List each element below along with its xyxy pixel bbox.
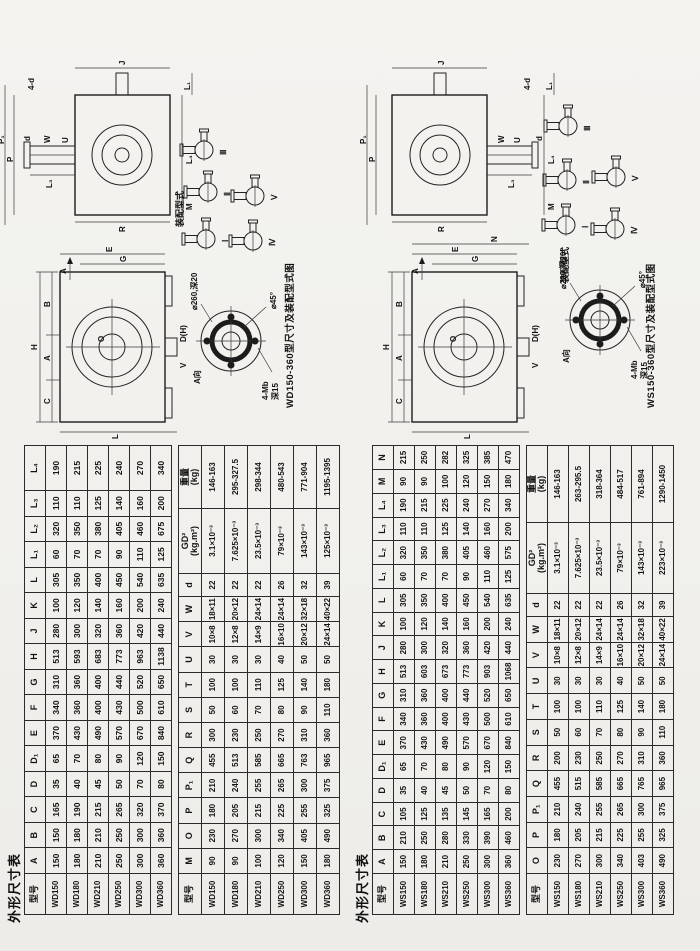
- column-header: A: [25, 848, 46, 874]
- value-cell: 603: [415, 660, 436, 684]
- value-cell: 200: [548, 745, 569, 771]
- value-cell: 32×18: [294, 597, 317, 622]
- value-cell: 210: [394, 826, 415, 850]
- value-cell: 3.1×10⁻³: [202, 509, 225, 574]
- table-row: WD15015015016535653703403105132801003056…: [46, 446, 67, 915]
- value-cell: 585: [590, 771, 611, 797]
- value-cell: 70: [67, 542, 88, 568]
- dim-label-v: V: [179, 362, 188, 368]
- value-cell: 125: [88, 491, 109, 517]
- table-row: WD300150405255300763310901405020×1232×18…: [294, 446, 317, 915]
- value-cell: 325: [653, 822, 674, 848]
- dim-label-l4: L₄: [547, 155, 556, 164]
- column-header: G: [373, 683, 394, 707]
- value-cell: 513: [225, 748, 248, 773]
- value-cell: 575: [499, 541, 520, 565]
- model-cell: WD250: [271, 874, 294, 915]
- value-cell: 16×10: [611, 642, 632, 668]
- value-cell: 320: [130, 797, 151, 823]
- value-cell: 430: [109, 695, 130, 721]
- value-cell: 761-894: [632, 446, 653, 523]
- dim-label-c: C: [43, 398, 52, 404]
- value-cell: 20×12: [632, 642, 653, 668]
- table-row: WS3604903253759653601101805024×1440×2239…: [653, 446, 674, 915]
- value-cell: 90: [202, 848, 225, 873]
- value-cell: 240: [151, 593, 172, 619]
- value-cell: 150: [499, 755, 520, 779]
- table-row: WS30030039016570120670500520903420200540…: [478, 446, 499, 915]
- value-cell: 125: [499, 565, 520, 589]
- value-cell: 230: [569, 745, 590, 771]
- value-cell: 300: [478, 850, 499, 874]
- dim-label-o: O: [97, 336, 106, 342]
- model-cell: WD150: [202, 874, 225, 915]
- assembly-type-iv: Ⅳ: [630, 226, 639, 234]
- value-cell: 18×11: [202, 597, 225, 622]
- column-header: W: [527, 617, 548, 643]
- column-header: 型号: [527, 874, 548, 915]
- value-cell: 180: [202, 798, 225, 823]
- value-cell: 165: [478, 802, 499, 826]
- dim-label-a: A: [395, 355, 404, 361]
- value-cell: 210: [202, 773, 225, 798]
- value-cell: 250: [248, 722, 271, 747]
- column-header: M: [179, 848, 202, 873]
- value-cell: 360: [109, 618, 130, 644]
- value-cell: 110: [248, 672, 271, 697]
- value-cell: 105: [394, 802, 415, 826]
- header-row: 型号ABCDD₁EFGHJKLL₁L₂L₃L₄: [25, 446, 46, 915]
- dim-label-e: E: [105, 246, 114, 252]
- value-cell: 143×10⁻³: [294, 509, 317, 574]
- assembly-type-i: Ⅰ: [221, 240, 230, 242]
- value-cell: 32: [632, 594, 653, 617]
- value-cell: 215: [88, 797, 109, 823]
- value-cell: 180: [317, 672, 340, 697]
- value-cell: 140: [109, 491, 130, 517]
- value-cell: 610: [499, 707, 520, 731]
- assembly-type-v: Ⅴ: [270, 194, 279, 201]
- value-cell: 263-295.5: [569, 446, 590, 523]
- column-header: 型号: [25, 874, 46, 915]
- value-cell: 70: [478, 778, 499, 802]
- dim-label-b: B: [395, 301, 404, 307]
- column-header: P: [179, 798, 202, 823]
- value-cell: 200: [499, 517, 520, 541]
- value-cell: 110: [130, 542, 151, 568]
- dim-label-h: H: [30, 344, 39, 350]
- dim-label-dh: D(H): [179, 325, 188, 342]
- column-header: H: [373, 660, 394, 684]
- value-cell: 180: [653, 694, 674, 720]
- value-cell: 650: [151, 669, 172, 695]
- value-cell: 250: [457, 850, 478, 874]
- dim-label-b: B: [43, 301, 52, 307]
- column-header: U: [527, 668, 548, 694]
- table-row: WD30030030032070120670500520963420200540…: [130, 446, 151, 915]
- value-cell: 24×14: [271, 597, 294, 622]
- value-cell: 310: [632, 745, 653, 771]
- dim-label-p: P: [6, 156, 15, 162]
- value-cell: 80: [271, 697, 294, 722]
- value-cell: 200: [151, 491, 172, 517]
- value-cell: 771-904: [294, 446, 317, 509]
- flange-chamfer-note: ⌀45°: [269, 292, 278, 309]
- value-cell: 120: [478, 755, 499, 779]
- dim-label-dh: D(H): [531, 325, 540, 342]
- value-cell: 265: [271, 773, 294, 798]
- value-cell: 70: [88, 542, 109, 568]
- value-cell: 350: [415, 541, 436, 565]
- value-cell: 125: [151, 542, 172, 568]
- model-cell: WS180: [569, 874, 590, 915]
- value-cell: 570: [109, 720, 130, 746]
- value-cell: 340: [611, 848, 632, 874]
- value-cell: 180: [317, 848, 340, 873]
- flange-depth-note: 深15: [270, 383, 280, 400]
- value-cell: 22: [590, 594, 611, 617]
- value-cell: 150: [46, 822, 67, 848]
- table-row: WS210300215255585250701103014×924×142223…: [590, 446, 611, 915]
- column-header: B: [25, 822, 46, 848]
- value-cell: 100: [248, 848, 271, 873]
- model-cell: WD210: [88, 874, 109, 915]
- ws-drawing-caption: WS150-360型尺寸及装配型式图: [645, 263, 657, 408]
- value-cell: 270: [478, 493, 499, 517]
- value-cell: 160: [478, 517, 499, 541]
- value-cell: 100: [436, 469, 457, 493]
- model-cell: WD210: [248, 874, 271, 915]
- value-cell: 23.5×10⁻³: [590, 523, 611, 594]
- value-cell: 65: [394, 755, 415, 779]
- value-cell: 45: [88, 771, 109, 797]
- table-row: WD18090270205240513230601003012×820×1222…: [225, 446, 248, 915]
- table-row: WS18018025012540704303603606033001203507…: [415, 446, 436, 915]
- value-cell: 100: [225, 672, 248, 697]
- value-cell: 490: [436, 731, 457, 755]
- dim-label-c: C: [395, 398, 404, 404]
- column-header: J: [25, 618, 46, 644]
- column-header: P₁: [179, 773, 202, 798]
- column-header: L₂: [373, 541, 394, 565]
- column-header: D₁: [373, 755, 394, 779]
- value-cell: 125: [611, 694, 632, 720]
- value-cell: 255: [632, 822, 653, 848]
- value-cell: 360: [457, 636, 478, 660]
- value-cell: 40×22: [317, 597, 340, 622]
- value-cell: 240: [225, 773, 248, 798]
- value-cell: 540: [478, 588, 499, 612]
- column-header: L₁: [25, 542, 46, 568]
- column-header: C: [25, 797, 46, 823]
- value-cell: 80: [88, 746, 109, 772]
- value-cell: 50: [202, 697, 225, 722]
- value-cell: 305: [46, 567, 67, 593]
- ws-technical-drawing: H C A B L O G E N V D(H) A: [352, 0, 697, 440]
- value-cell: 3.1×10⁻³: [548, 523, 569, 594]
- value-cell: 430: [415, 731, 436, 755]
- value-cell: 295-327.5: [225, 446, 248, 509]
- value-cell: 250: [415, 446, 436, 470]
- value-cell: 40×22: [653, 617, 674, 643]
- column-header: M: [373, 469, 394, 493]
- value-cell: 360: [415, 683, 436, 707]
- value-cell: 965: [653, 771, 674, 797]
- value-cell: 20×12: [225, 597, 248, 622]
- model-cell: WS300: [478, 874, 499, 915]
- value-cell: 23.5×10⁻³: [248, 509, 271, 574]
- column-header: 型号: [179, 874, 202, 915]
- value-cell: 340: [271, 823, 294, 848]
- model-cell: WS360: [653, 874, 674, 915]
- ws-flange-detail: A向 4-Mb 深15 ⌀200,深20 ⌀45°: [558, 251, 649, 379]
- value-cell: 665: [271, 748, 294, 773]
- value-cell: 60: [569, 719, 590, 745]
- assembly-types-label: 装配型式: [559, 247, 570, 284]
- value-cell: 205: [225, 798, 248, 823]
- value-cell: 215: [394, 446, 415, 470]
- value-cell: 360: [151, 848, 172, 874]
- assembly-type-v: Ⅴ: [631, 175, 640, 182]
- dim-label-g: G: [119, 256, 128, 262]
- value-cell: 120: [67, 593, 88, 619]
- value-cell: 300: [130, 822, 151, 848]
- value-cell: 265: [109, 797, 130, 823]
- value-cell: 22: [225, 574, 248, 597]
- value-cell: 1195-1395: [317, 446, 340, 509]
- value-cell: 480-543: [271, 446, 294, 509]
- value-cell: 30: [590, 668, 611, 694]
- value-cell: 440: [499, 636, 520, 660]
- value-cell: 420: [478, 636, 499, 660]
- value-cell: 225: [436, 493, 457, 517]
- rotated-page: 外形尺寸表 型号ABCDD₁EFGHJKLL₁L₂L₃L₄WD150150150…: [0, 0, 700, 951]
- table-row: WS36036046020080150840610650106844024063…: [499, 446, 520, 915]
- value-cell: 400: [436, 683, 457, 707]
- assembly-type-ii: Ⅱ: [223, 192, 232, 196]
- value-cell: 160: [130, 491, 151, 517]
- column-header: 型号: [373, 874, 394, 915]
- value-cell: 773: [457, 660, 478, 684]
- value-cell: 240: [569, 796, 590, 822]
- column-header: L₄: [25, 446, 46, 491]
- value-cell: 110: [394, 517, 415, 541]
- column-header: W: [179, 597, 202, 622]
- flange-bolts-note: 4-Mb: [261, 381, 270, 400]
- model-cell: WS150: [394, 874, 415, 915]
- dim-label-l4: L₄: [185, 155, 194, 164]
- header-row: 型号OPP₁QRSTUVWdGD² (kg.m²)重量 (kg): [527, 446, 548, 915]
- value-cell: 670: [130, 720, 151, 746]
- value-cell: 35: [394, 778, 415, 802]
- value-cell: 430: [67, 720, 88, 746]
- value-cell: 190: [46, 446, 67, 491]
- value-cell: 70: [415, 565, 436, 589]
- value-cell: 840: [499, 731, 520, 755]
- header-row: 型号ABCDD₁EFGHJKLL₁L₂L₃L₄MN: [373, 446, 394, 915]
- column-header: D₁: [25, 746, 46, 772]
- value-cell: 90: [294, 697, 317, 722]
- value-cell: 270: [569, 848, 590, 874]
- dim-label-r: R: [118, 226, 127, 232]
- value-cell: 60: [225, 697, 248, 722]
- wd-drawing-caption: WD150-360型尺寸及装配型式图: [284, 263, 296, 408]
- value-cell: 500: [478, 707, 499, 731]
- column-header: E: [373, 731, 394, 755]
- value-cell: 70: [590, 719, 611, 745]
- value-cell: 270: [130, 446, 151, 491]
- model-cell: WD180: [225, 874, 248, 915]
- column-header: d: [179, 574, 202, 597]
- table-row: WS300403255300765310901405020×1232×18321…: [632, 446, 653, 915]
- value-cell: 360: [67, 695, 88, 721]
- value-cell: 320: [88, 618, 109, 644]
- value-cell: 325: [457, 446, 478, 470]
- value-cell: 35: [46, 771, 67, 797]
- value-cell: 145: [457, 802, 478, 826]
- dim-label-j: J: [118, 61, 127, 65]
- value-cell: 140: [88, 593, 109, 619]
- column-header: S: [527, 719, 548, 745]
- value-cell: 460: [130, 516, 151, 542]
- value-cell: 763: [294, 748, 317, 773]
- value-cell: 215: [248, 798, 271, 823]
- value-cell: 30: [225, 647, 248, 672]
- value-cell: 200: [130, 593, 151, 619]
- value-cell: 165: [46, 797, 67, 823]
- model-cell: WD180: [67, 874, 88, 915]
- value-cell: 90: [457, 565, 478, 589]
- value-cell: 210: [548, 796, 569, 822]
- value-cell: 110: [317, 697, 340, 722]
- value-cell: 450: [109, 567, 130, 593]
- column-header: L₄: [373, 493, 394, 517]
- value-cell: 80: [611, 719, 632, 745]
- value-cell: 340: [46, 695, 67, 721]
- column-header: GD² (kg.m²): [527, 523, 548, 594]
- value-cell: 14×9: [248, 622, 271, 647]
- value-cell: 120: [130, 746, 151, 772]
- value-cell: 965: [317, 748, 340, 773]
- value-cell: 110: [653, 719, 674, 745]
- value-cell: 80: [499, 778, 520, 802]
- dim-label-h: H: [382, 344, 391, 350]
- value-cell: 90: [225, 848, 248, 873]
- value-cell: 484-517: [611, 446, 632, 523]
- value-cell: 90: [394, 469, 415, 493]
- column-header: L₂: [25, 516, 46, 542]
- dim-label-w: W: [497, 135, 506, 143]
- ws-dimension-table-1: 型号ABCDD₁EFGHJKLL₁L₂L₃L₄MNWS1501502101053…: [372, 445, 520, 915]
- value-cell: 140: [632, 694, 653, 720]
- value-cell: 110: [46, 491, 67, 517]
- value-cell: 100: [46, 593, 67, 619]
- value-cell: 150: [151, 746, 172, 772]
- dim-label-g: G: [471, 256, 480, 262]
- table-row: WD210100300215255585250701103014×924×142…: [248, 446, 271, 915]
- value-cell: 380: [88, 516, 109, 542]
- value-cell: 300: [294, 773, 317, 798]
- value-cell: 100: [548, 694, 569, 720]
- column-header: E: [25, 720, 46, 746]
- value-cell: 500: [130, 695, 151, 721]
- value-cell: 50: [317, 647, 340, 672]
- value-cell: 420: [130, 618, 151, 644]
- column-header: A: [373, 850, 394, 874]
- value-cell: 80: [151, 771, 172, 797]
- table-row: WS21021028013545804904004006733201404007…: [436, 446, 457, 915]
- value-cell: 140: [457, 517, 478, 541]
- value-cell: 24×14: [248, 597, 271, 622]
- column-header: P₁: [527, 796, 548, 822]
- column-header: Q: [527, 771, 548, 797]
- dim-label-l1: L₁: [545, 81, 554, 90]
- value-cell: 215: [415, 493, 436, 517]
- value-cell: 540: [130, 567, 151, 593]
- wd-technical-drawing: H C A B L O G E V D(H) A: [0, 0, 345, 440]
- value-cell: 210: [436, 850, 457, 874]
- value-cell: 270: [225, 823, 248, 848]
- view-arrow-label: A: [59, 268, 68, 274]
- dim-label-l: L: [111, 434, 120, 439]
- value-cell: 40: [415, 778, 436, 802]
- value-cell: 385: [478, 446, 499, 470]
- value-cell: 7.625×10⁻³: [569, 523, 590, 594]
- value-cell: 300: [248, 823, 271, 848]
- value-cell: 610: [151, 695, 172, 721]
- value-cell: 340: [151, 446, 172, 491]
- value-cell: 298-344: [248, 446, 271, 509]
- value-cell: 1068: [499, 660, 520, 684]
- column-header: Q: [179, 748, 202, 773]
- value-cell: 230: [225, 722, 248, 747]
- value-cell: 22: [248, 574, 271, 597]
- model-cell: WS250: [611, 874, 632, 915]
- value-cell: 160: [109, 593, 130, 619]
- value-cell: 300: [415, 636, 436, 660]
- value-cell: 250: [109, 848, 130, 874]
- value-cell: 350: [415, 588, 436, 612]
- value-cell: 100: [569, 694, 590, 720]
- value-cell: 150: [478, 469, 499, 493]
- value-cell: 282: [436, 446, 457, 470]
- value-cell: 255: [294, 798, 317, 823]
- column-header: T: [527, 694, 548, 720]
- value-cell: 70: [130, 771, 151, 797]
- value-cell: 14×9: [590, 642, 611, 668]
- value-cell: 280: [394, 636, 415, 660]
- value-cell: 300: [202, 722, 225, 747]
- value-cell: 110: [590, 694, 611, 720]
- dim-label-v: V: [531, 362, 540, 368]
- table-row: WS15015021010535653703403105132801003056…: [394, 446, 415, 915]
- value-cell: 180: [67, 822, 88, 848]
- ws-assembly-types: 装配型式 Ⅰ Ⅱ Ⅲ Ⅳ Ⅴ: [542, 105, 640, 284]
- value-cell: 30: [548, 668, 569, 694]
- value-cell: 490: [317, 823, 340, 848]
- value-cell: 318-364: [590, 446, 611, 523]
- value-cell: 520: [478, 683, 499, 707]
- wd-dimension-table-2: 型号MOPP₁QRSTUVWdGD² (kg.m²)重量 (kg)WD15090…: [178, 445, 340, 915]
- column-header: O: [179, 823, 202, 848]
- value-cell: 135: [436, 802, 457, 826]
- dim-label-u: U: [513, 137, 522, 143]
- value-cell: 370: [394, 731, 415, 755]
- value-cell: 513: [46, 644, 67, 670]
- value-cell: 30: [569, 668, 590, 694]
- value-cell: 320: [46, 516, 67, 542]
- dim-label-w: W: [43, 135, 52, 143]
